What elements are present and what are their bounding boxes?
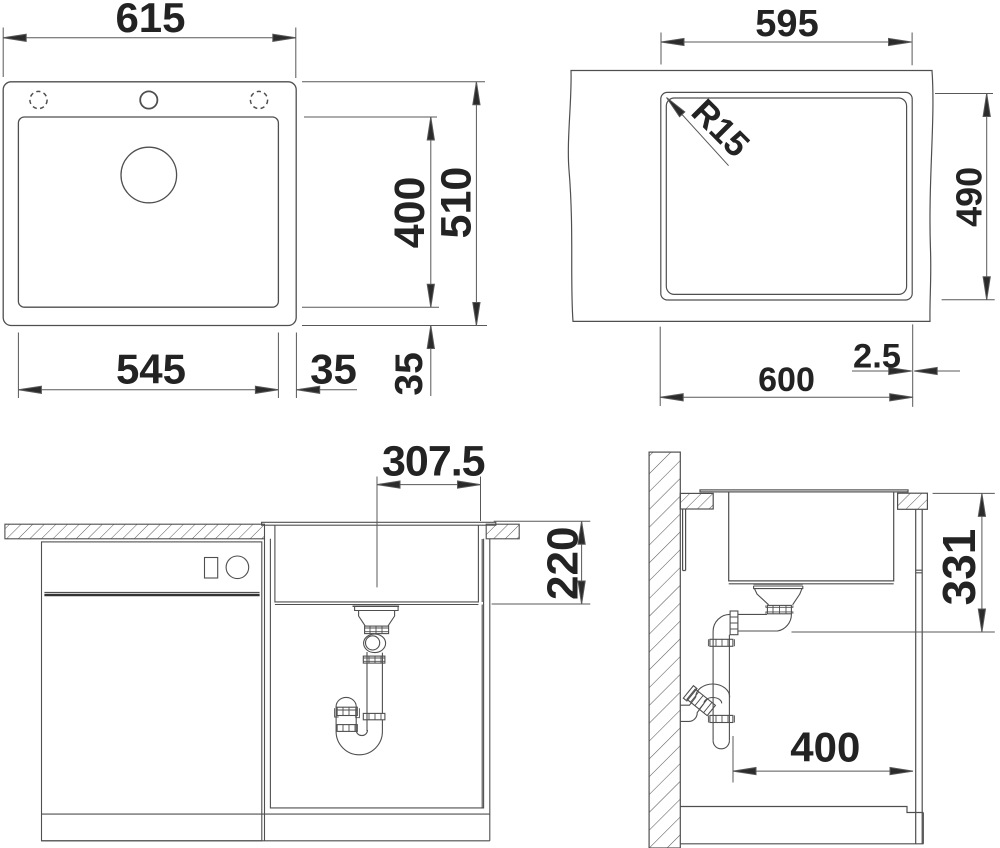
- svg-text:400: 400: [790, 724, 860, 771]
- svg-text:600: 600: [758, 361, 815, 399]
- svg-text:331: 331: [933, 529, 985, 606]
- svg-text:615: 615: [115, 0, 185, 41]
- svg-text:307.5: 307.5: [382, 438, 485, 486]
- svg-text:400: 400: [386, 177, 434, 249]
- svg-text:2.5: 2.5: [853, 337, 901, 375]
- svg-text:595: 595: [755, 3, 818, 45]
- svg-text:35: 35: [310, 345, 357, 392]
- svg-text:35: 35: [388, 352, 431, 395]
- svg-text:545: 545: [116, 345, 186, 392]
- svg-text:220: 220: [539, 527, 588, 600]
- svg-text:490: 490: [948, 167, 989, 227]
- svg-text:510: 510: [433, 167, 481, 239]
